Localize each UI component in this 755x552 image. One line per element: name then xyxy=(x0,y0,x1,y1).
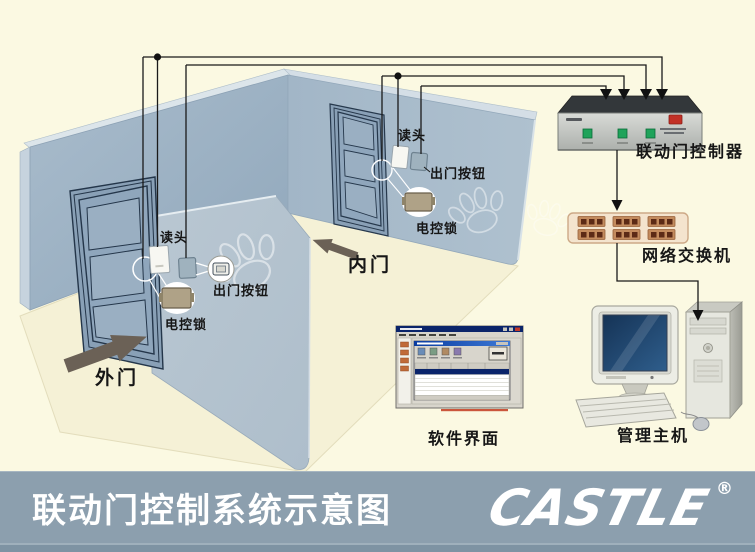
controller-caption-line xyxy=(660,128,686,130)
host-label: 管理主机 xyxy=(617,426,689,445)
dialog-title-text-mark xyxy=(417,343,443,345)
outer-reader-label: 读头 xyxy=(160,230,188,246)
switch-port-group xyxy=(613,217,640,227)
brand-logo-text: CASTLE xyxy=(484,483,714,533)
junction-dot-icon xyxy=(394,72,401,79)
dialog-side-button-text-mark xyxy=(492,352,504,355)
inner-lock-icon xyxy=(405,193,432,211)
tower-drive-bay xyxy=(690,318,726,325)
diagram-title: 联动门控制系统示意图 xyxy=(32,483,392,532)
banner-bottom-strip xyxy=(0,543,755,552)
button-zoom-detail xyxy=(217,266,226,272)
network-switch-device xyxy=(568,213,688,243)
lock-tab xyxy=(159,293,163,302)
controller-brand-mark xyxy=(566,118,582,121)
controller-power-switch xyxy=(669,115,682,124)
inner-door xyxy=(330,104,388,236)
outer-exit-button-label: 出门按钮 xyxy=(213,283,269,299)
switch-port-group xyxy=(613,230,640,240)
switch-port-group xyxy=(578,230,605,240)
tower-drive-bay xyxy=(690,328,726,334)
window-close-icon xyxy=(515,328,520,332)
wire xyxy=(143,57,662,90)
switch-label: 网络交换机 xyxy=(642,246,732,265)
tower-power-button-inner xyxy=(706,346,710,350)
keyboard xyxy=(576,393,676,427)
wire xyxy=(421,86,606,90)
outer-reader-icon xyxy=(149,245,170,273)
inner-lock-label: 电控锁 xyxy=(416,221,458,237)
title-banner: 联动门控制系统示意图 CASTLE ® xyxy=(0,471,755,543)
brand-logo: CASTLE ® xyxy=(490,483,733,533)
inner-door-label: 内门 xyxy=(348,253,392,276)
arrowhead-down-icon xyxy=(612,200,623,211)
outer-wall-left-edge xyxy=(20,147,30,310)
lock-tab xyxy=(402,197,406,205)
computer-host xyxy=(576,302,742,431)
dialog-window-buttons xyxy=(496,342,508,345)
inner-reader-label: 读头 xyxy=(398,128,426,144)
switch-port-group xyxy=(648,217,675,227)
controller-led-green xyxy=(618,129,627,138)
software-window xyxy=(396,326,523,411)
junction-dot-icon xyxy=(154,53,161,60)
controller-led-caption xyxy=(582,142,593,144)
outer-door-label: 外门 xyxy=(95,366,139,389)
window-maximize-icon xyxy=(509,328,513,332)
controller-label: 联动门控制器 xyxy=(636,142,744,161)
table-rows-area xyxy=(415,375,509,396)
outer-exit-button-icon xyxy=(178,258,196,279)
inner-reader-icon xyxy=(391,145,409,169)
software-label: 软件界面 xyxy=(428,429,500,448)
outer-lock-icon xyxy=(162,288,191,308)
wire xyxy=(382,76,624,90)
lock-tab xyxy=(190,293,194,302)
monitor-buttons xyxy=(606,376,626,379)
dialog-statusbar xyxy=(415,396,509,401)
software-red-caption-mark xyxy=(441,409,508,411)
inner-exit-button-label: 出门按钮 xyxy=(430,166,486,182)
tower-side xyxy=(730,302,742,418)
controller-led-caption xyxy=(617,142,628,144)
controller-caption-line xyxy=(664,132,684,134)
mouse xyxy=(693,418,709,431)
software-title-text-mark xyxy=(400,328,422,330)
window-minimize-icon xyxy=(503,328,507,332)
partition-wall-right-rim xyxy=(309,238,310,458)
outer-lock-label: 电控锁 xyxy=(165,317,207,333)
switch-port-group xyxy=(578,217,605,227)
controller-led-green xyxy=(646,129,655,138)
registered-trademark-icon: ® xyxy=(716,479,733,499)
table-selected-row xyxy=(415,369,509,375)
paw-watermark-icon xyxy=(520,196,575,241)
lock-tab xyxy=(431,197,435,205)
controller-led-green xyxy=(583,129,592,138)
scene-canvas: 读头 出门按钮 电控锁 外门 读头 出门按钮 电控锁 内门 联动门控制器 网络交… xyxy=(0,0,755,471)
diagram-canvas: 读头 出门按钮 电控锁 外门 读头 出门按钮 电控锁 内门 联动门控制器 网络交… xyxy=(0,0,755,552)
table-header-row xyxy=(415,363,509,369)
monitor-power-dot xyxy=(650,376,653,379)
switch-port-group xyxy=(648,230,675,240)
